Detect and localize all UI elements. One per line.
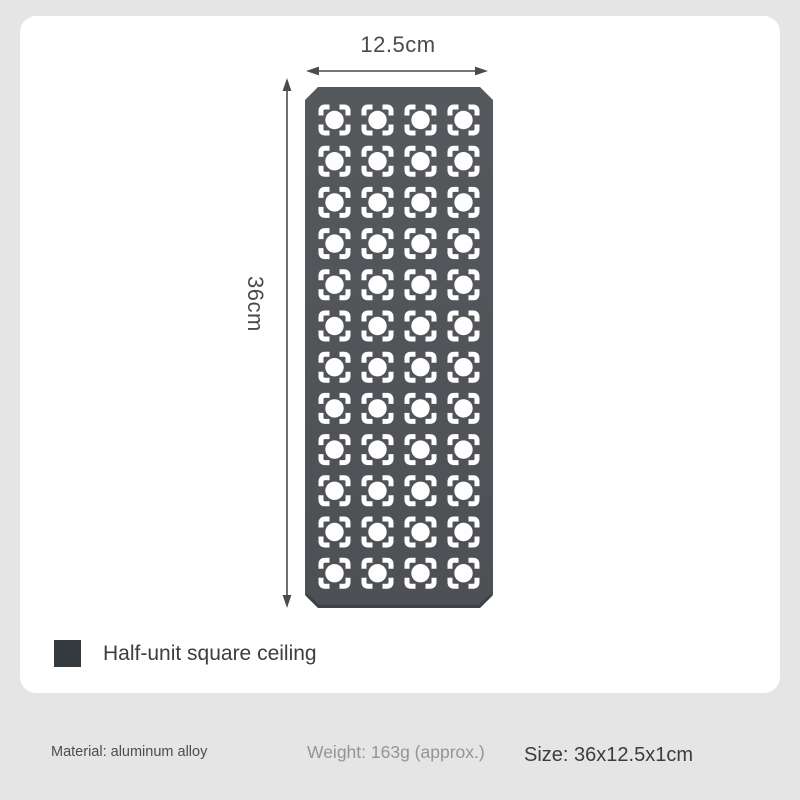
- legend-row: Half-unit square ceiling: [54, 640, 317, 667]
- weight-spec-text: Weight: 163g (approx.): [307, 742, 485, 763]
- material-spec-text: Material: aluminum alloy: [51, 744, 207, 760]
- page: { "page": { "background": "#e5e5e5", "ca…: [0, 0, 800, 800]
- ceiling-panel-graphic: [305, 87, 493, 608]
- height-dimension-label: 36cm: [242, 264, 268, 344]
- color-swatch: [54, 640, 81, 667]
- vertical-dimension-arrow-icon: [280, 78, 294, 608]
- size-spec-text: Size: 36x12.5x1cm: [524, 744, 693, 767]
- legend-label: Half-unit square ceiling: [103, 642, 317, 666]
- horizontal-dimension-arrow-icon: [306, 64, 488, 78]
- width-dimension-label: 12.5cm: [300, 32, 496, 58]
